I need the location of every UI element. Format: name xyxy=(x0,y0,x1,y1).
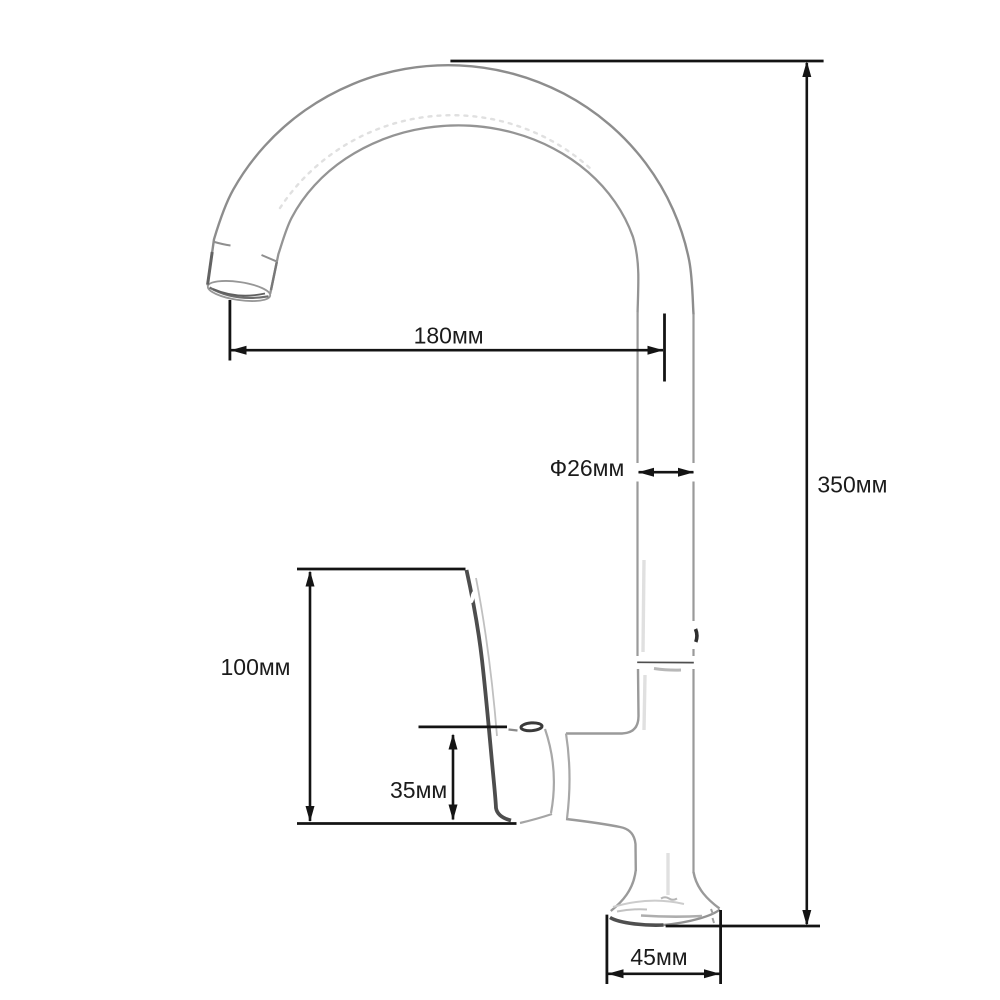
svg-text:180мм: 180мм xyxy=(414,323,484,349)
svg-text:Ф26мм: Ф26мм xyxy=(550,455,625,481)
svg-text:350мм: 350мм xyxy=(817,472,887,498)
svg-text:45мм: 45мм xyxy=(630,944,687,970)
svg-text:35мм: 35мм xyxy=(390,777,447,803)
svg-text:100мм: 100мм xyxy=(221,654,291,680)
